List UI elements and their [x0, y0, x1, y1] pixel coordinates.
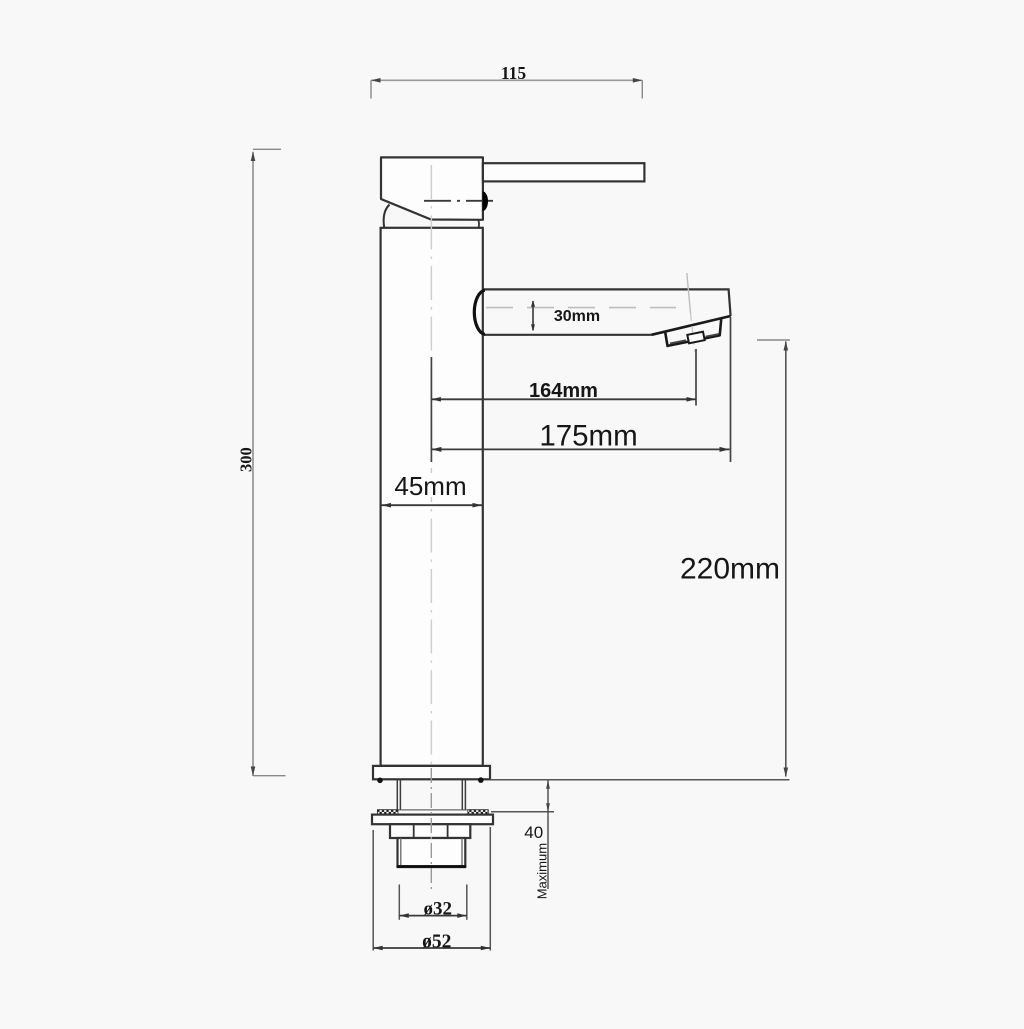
svg-text:220mm: 220mm: [680, 553, 780, 586]
svg-text:164mm: 164mm: [529, 380, 598, 402]
svg-text:30mm: 30mm: [554, 308, 600, 325]
svg-text:ø52: ø52: [422, 932, 451, 953]
svg-text:175mm: 175mm: [539, 420, 637, 453]
svg-text:Maximum: Maximum: [535, 843, 550, 899]
svg-text:300: 300: [236, 447, 255, 472]
svg-text:45mm: 45mm: [394, 471, 466, 501]
svg-text:40: 40: [524, 823, 543, 842]
svg-text:ø32: ø32: [424, 899, 453, 920]
svg-text:115: 115: [501, 63, 527, 83]
